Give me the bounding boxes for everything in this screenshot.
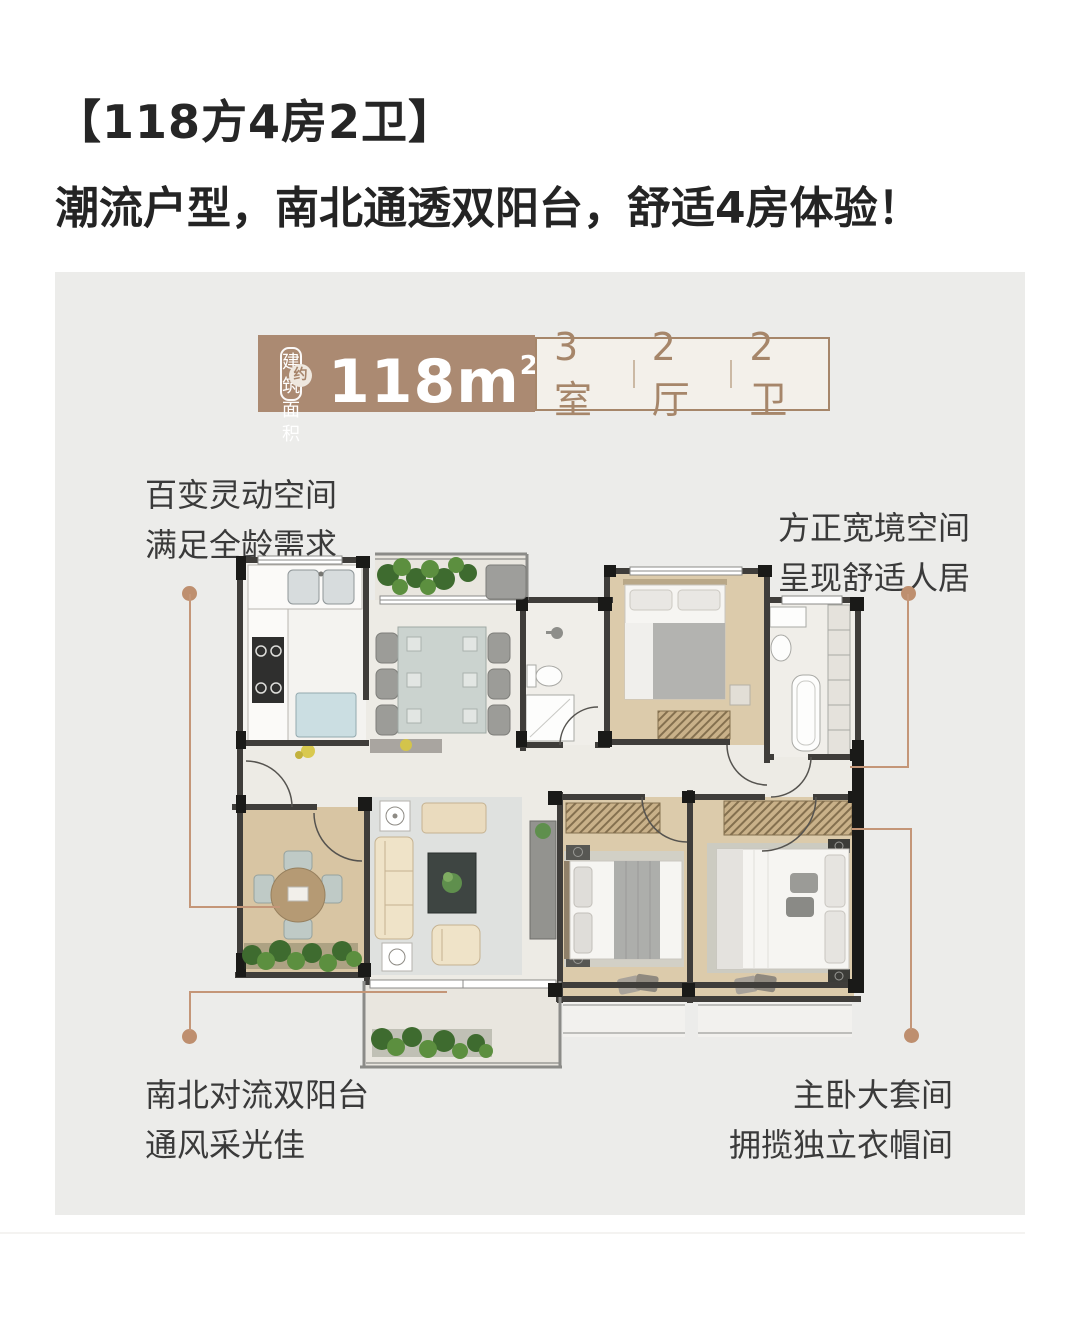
- connector-line-bottom-left-v: [189, 993, 191, 1031]
- annotation-line: 拥揽独立衣帽间: [729, 1120, 953, 1170]
- connector-line-top-left-v: [189, 594, 191, 908]
- connector-line-top-right-h: [850, 766, 909, 768]
- spec-rooms: 3室: [537, 325, 633, 424]
- spec-baths: 2卫: [732, 325, 828, 424]
- page-subtitle: 潮流户型，南北通透双阳台，舒适4房体验！: [55, 172, 922, 236]
- connector-line-bottom-right-h: [852, 828, 912, 830]
- connector-dot-bottom-right: [904, 1028, 919, 1043]
- connector-line-top-right-v: [907, 594, 909, 767]
- area-value: 118m2: [328, 329, 539, 419]
- area-label-line2: 面积: [282, 399, 300, 447]
- annotation-line: 南北对流双阳台: [145, 1070, 369, 1120]
- dining-table: [376, 627, 510, 735]
- promo-page: 【118方4房2卫】 潮流户型，南北通透双阳台，舒适4房体验！ 建筑 面积 约 …: [0, 0, 1080, 1340]
- annotation-line: 通风采光佳: [145, 1120, 369, 1170]
- annotation-line: 百变灵动空间: [145, 470, 337, 520]
- floor-plan: [230, 545, 870, 1075]
- foyer-console: [370, 739, 442, 753]
- connector-line-top-left-h: [189, 906, 280, 908]
- annotation-line: 主卧大套间: [729, 1070, 953, 1120]
- area-label-box: 建筑 面积 约: [280, 347, 302, 401]
- spec-halls: 2厅: [635, 325, 731, 424]
- room-spec-box: 3室 2厅 2卫: [535, 337, 830, 411]
- curtain-box: [486, 565, 526, 599]
- annotation-bottom-right: 主卧大套间 拥揽独立衣帽间: [729, 1070, 953, 1170]
- connector-line-bottom-right-v: [910, 830, 912, 1030]
- page-title: 【118方4房2卫】: [55, 86, 455, 152]
- connector-line-bottom-left-h: [189, 991, 447, 993]
- connector-dot-bottom-left: [182, 1029, 197, 1044]
- area-badge: 建筑 面积 约 118m2: [258, 335, 535, 412]
- master-bedroom: [717, 801, 852, 995]
- floorplan-panel: 建筑 面积 约 118m2 3室 2厅 2卫 百变灵动空间 满足全龄需求 方正宽…: [55, 272, 1025, 1215]
- annotation-bottom-left: 南北对流双阳台 通风采光佳: [145, 1070, 369, 1170]
- area-number: 118m: [328, 347, 520, 417]
- approx-circle: 约: [289, 364, 312, 387]
- bottom-divider: [0, 1232, 1025, 1234]
